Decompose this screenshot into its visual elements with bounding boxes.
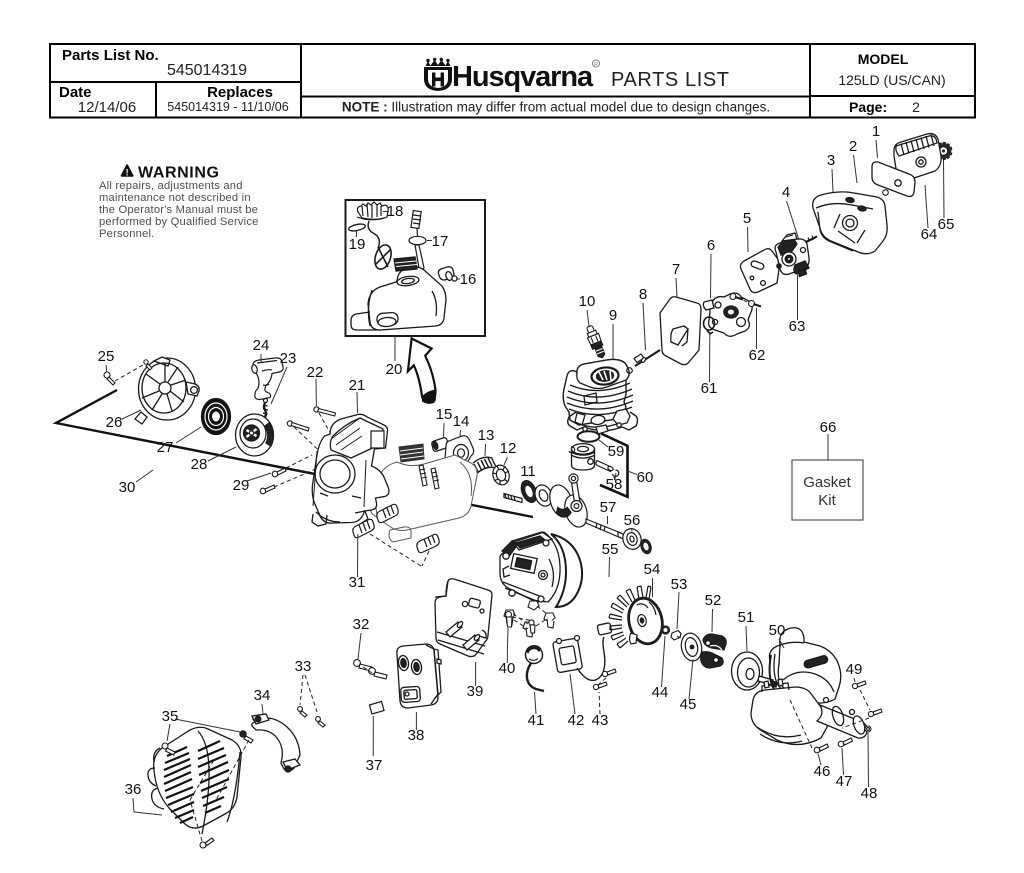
svg-text:23: 23 (280, 350, 297, 367)
svg-text:48: 48 (861, 785, 878, 802)
svg-text:46: 46 (814, 763, 831, 780)
svg-text:28: 28 (191, 456, 208, 473)
svg-text:42: 42 (568, 712, 585, 729)
svg-text:maintenance not described in: maintenance not described in (99, 192, 251, 204)
svg-text:30: 30 (119, 479, 136, 496)
svg-text:56: 56 (624, 512, 641, 529)
svg-text:38: 38 (408, 727, 425, 744)
svg-text:7: 7 (672, 261, 680, 278)
svg-text:PARTS LIST: PARTS LIST (611, 69, 730, 91)
svg-text:545014319: 545014319 (167, 62, 247, 79)
svg-text:6: 6 (707, 237, 715, 254)
svg-text:63: 63 (789, 318, 806, 335)
svg-text:40: 40 (499, 660, 516, 677)
svg-text:18: 18 (387, 203, 404, 220)
svg-text:2: 2 (912, 99, 920, 115)
svg-text:52: 52 (705, 592, 722, 609)
svg-text:545014319 - 11/10/06: 545014319 - 11/10/06 (167, 100, 288, 114)
svg-text:58: 58 (606, 476, 623, 493)
svg-text:performed by Qualified Service: performed by Qualified Service (99, 216, 259, 228)
svg-text:27: 27 (157, 439, 174, 456)
svg-text:Parts List No.: Parts List No. (62, 47, 159, 64)
svg-text:15: 15 (436, 406, 453, 423)
svg-text:!: ! (126, 167, 129, 177)
svg-text:9: 9 (609, 307, 617, 324)
svg-text:NOTE : Illustration may differ: NOTE : Illustration may differ from actu… (342, 100, 770, 115)
svg-text:R: R (594, 62, 598, 68)
svg-text:29: 29 (233, 477, 250, 494)
svg-text:33: 33 (295, 658, 312, 675)
svg-text:31: 31 (349, 574, 366, 591)
svg-text:66: 66 (820, 419, 837, 436)
svg-text:26: 26 (106, 414, 123, 431)
svg-text:24: 24 (253, 337, 270, 354)
svg-text:the Operator's Manual must be: the Operator's Manual must be (99, 204, 258, 216)
svg-text:12: 12 (500, 440, 517, 457)
svg-text:11: 11 (520, 463, 536, 480)
svg-text:12/14/06: 12/14/06 (78, 99, 136, 116)
svg-text:22: 22 (307, 364, 324, 381)
svg-text:Kit: Kit (818, 492, 836, 509)
svg-text:21: 21 (349, 377, 366, 394)
svg-text:Gasket: Gasket (803, 474, 851, 491)
svg-text:19: 19 (349, 236, 366, 253)
svg-text:55: 55 (602, 541, 619, 558)
svg-text:125LD (US/CAN): 125LD (US/CAN) (838, 72, 945, 88)
svg-text:4: 4 (782, 184, 790, 201)
svg-text:Replaces: Replaces (207, 84, 273, 101)
svg-text:54: 54 (644, 561, 661, 578)
svg-text:5: 5 (743, 210, 751, 227)
svg-text:60: 60 (637, 469, 654, 486)
svg-text:43: 43 (592, 712, 609, 729)
svg-text:35: 35 (162, 708, 179, 725)
svg-text:57: 57 (600, 499, 617, 516)
svg-text:39: 39 (467, 683, 484, 700)
svg-text:13: 13 (478, 427, 495, 444)
svg-text:61: 61 (701, 380, 718, 397)
svg-text:20: 20 (386, 361, 403, 378)
svg-text:45: 45 (680, 696, 697, 713)
svg-text:41: 41 (528, 712, 545, 729)
svg-text:Personnel.: Personnel. (99, 228, 155, 240)
svg-text:14: 14 (453, 413, 470, 430)
svg-text:64: 64 (921, 226, 938, 243)
svg-text:34: 34 (254, 687, 271, 704)
svg-text:51: 51 (738, 609, 755, 626)
svg-text:37: 37 (366, 757, 383, 774)
svg-text:MODEL: MODEL (858, 51, 909, 67)
svg-text:62: 62 (749, 347, 766, 364)
svg-text:50: 50 (769, 622, 786, 639)
svg-text:59: 59 (608, 443, 625, 460)
svg-text:Page:: Page: (849, 99, 887, 115)
svg-text:10: 10 (579, 293, 596, 310)
svg-text:25: 25 (98, 348, 115, 365)
svg-text:3: 3 (827, 152, 835, 169)
svg-text:65: 65 (938, 216, 955, 233)
svg-text:36: 36 (125, 781, 142, 798)
svg-text:16: 16 (460, 271, 477, 288)
svg-text:WARNING: WARNING (138, 165, 220, 182)
svg-text:17: 17 (432, 233, 449, 250)
svg-text:49: 49 (846, 661, 863, 678)
svg-text:All repairs, adjustments and: All repairs, adjustments and (99, 180, 243, 192)
svg-text:32: 32 (353, 616, 370, 633)
svg-text:1: 1 (872, 123, 880, 140)
svg-text:2: 2 (849, 138, 857, 155)
svg-text:Husqvarna: Husqvarna (452, 61, 594, 93)
svg-text:44: 44 (652, 684, 669, 701)
svg-text:47: 47 (836, 773, 853, 790)
svg-text:53: 53 (671, 576, 688, 593)
svg-text:8: 8 (639, 286, 647, 303)
